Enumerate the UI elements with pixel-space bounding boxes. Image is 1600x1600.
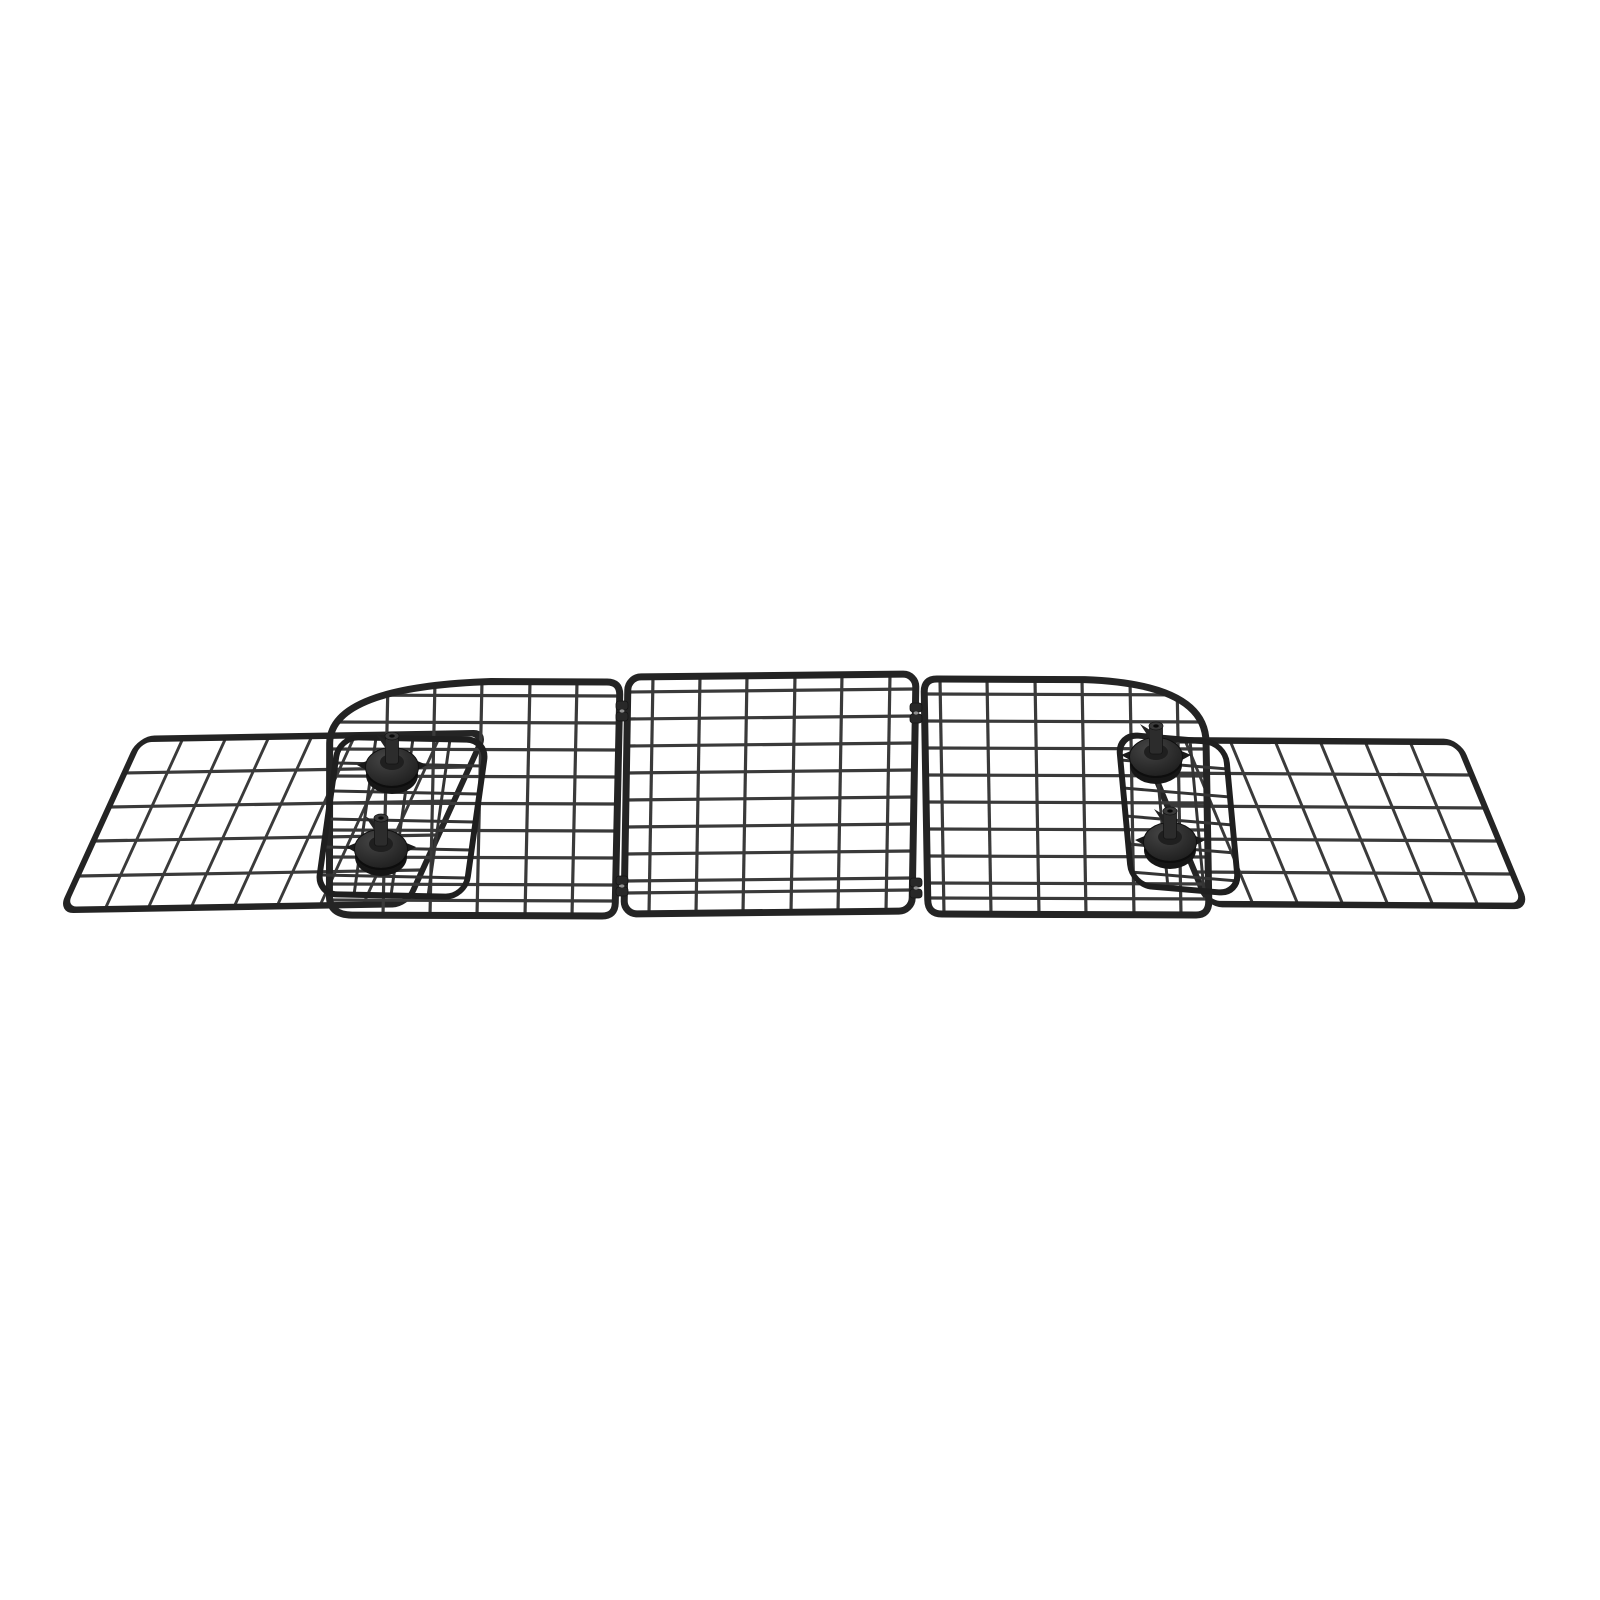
mesh-wire-horizontal [626,890,911,893]
center-panel [624,674,916,914]
mesh-wire-horizontal [627,824,912,827]
hinge-knuckle [910,714,922,723]
mesh-wire-horizontal [1169,806,1484,808]
mesh-wire-vertical [838,676,842,910]
mesh-wire-vertical [192,738,269,906]
mesh-wire-horizontal [929,898,1207,899]
mesh-wire-vertical [1366,743,1433,904]
knob-stem-wing [1154,809,1164,824]
mesh-wire-horizontal [929,883,1207,884]
mesh-wire-horizontal [328,884,614,885]
mesh-wire-vertical [1177,681,1181,913]
hinge-knuckle [910,703,922,712]
mesh-wire-horizontal [330,803,616,804]
mesh-wire-horizontal [1196,872,1511,874]
mesh-wire-vertical [987,681,991,913]
pet-barrier-product-image: Adjustable black wire-mesh vehicle pet b… [0,0,1600,1600]
mesh-wire-horizontal [328,900,614,901]
hinge-pin-highlight [914,711,919,714]
mesh-wire-horizontal [629,716,914,719]
mesh-wire-horizontal [629,689,914,692]
hinge-pin-highlight [620,884,625,887]
mesh-wire-horizontal [329,819,474,822]
mesh-wire-vertical [149,739,226,907]
mesh-wire-vertical [791,677,795,911]
mesh-wire-horizontal [627,797,912,800]
hinge-knuckle [910,878,922,887]
hinge-knuckle [616,887,628,896]
mesh-wire-horizontal [321,875,466,878]
mesh-wire-vertical [1276,742,1343,903]
mesh-wire-horizontal [626,878,911,881]
mesh-wire-vertical [106,740,183,908]
hinge-knuckle [616,712,628,721]
mesh-wire-vertical [572,683,577,914]
mesh-wire-horizontal [628,743,913,746]
mesh-wire-vertical [235,738,312,906]
mesh-wire-vertical [743,677,747,911]
mesh-wire-vertical [1082,681,1086,913]
mesh-wire-horizontal [627,851,912,854]
mesh-wire-vertical [383,683,388,914]
mesh-wire-vertical [696,678,700,912]
knob-cap-hole [389,734,395,737]
mesh-wire-vertical [649,678,653,912]
knob-cap-hole [1167,809,1173,812]
mesh-wire-horizontal [928,802,1206,803]
hinge [910,703,922,723]
mesh-wire-vertical [940,681,944,913]
mesh-wire-horizontal [332,722,618,723]
hinge-knuckle [910,889,922,898]
mesh-wire-vertical [1321,743,1388,904]
mesh-wire-horizontal [628,770,913,773]
mesh-wire-vertical [525,683,530,914]
mesh-wire-horizontal [1125,788,1229,797]
mesh-wire-horizontal [926,721,1204,722]
mesh-wire-vertical [886,676,890,910]
hinge-knuckle [616,701,628,710]
hinge-pin-highlight [914,886,919,889]
knob-cap-hole [1153,724,1159,727]
mesh-wire-horizontal [1183,839,1498,841]
product-photo-canvas: Adjustable black wire-mesh vehicle pet b… [0,0,1600,1600]
hinge-knuckle [616,876,628,885]
hinge-pin-highlight [620,709,625,712]
mesh-grid [626,676,915,913]
mesh-grid [328,683,619,915]
mesh-wire-vertical [1231,742,1298,903]
slide-clamp-brackets [317,734,1239,897]
mesh-wire-vertical [1035,681,1039,913]
knob-cap-hole [378,816,384,819]
